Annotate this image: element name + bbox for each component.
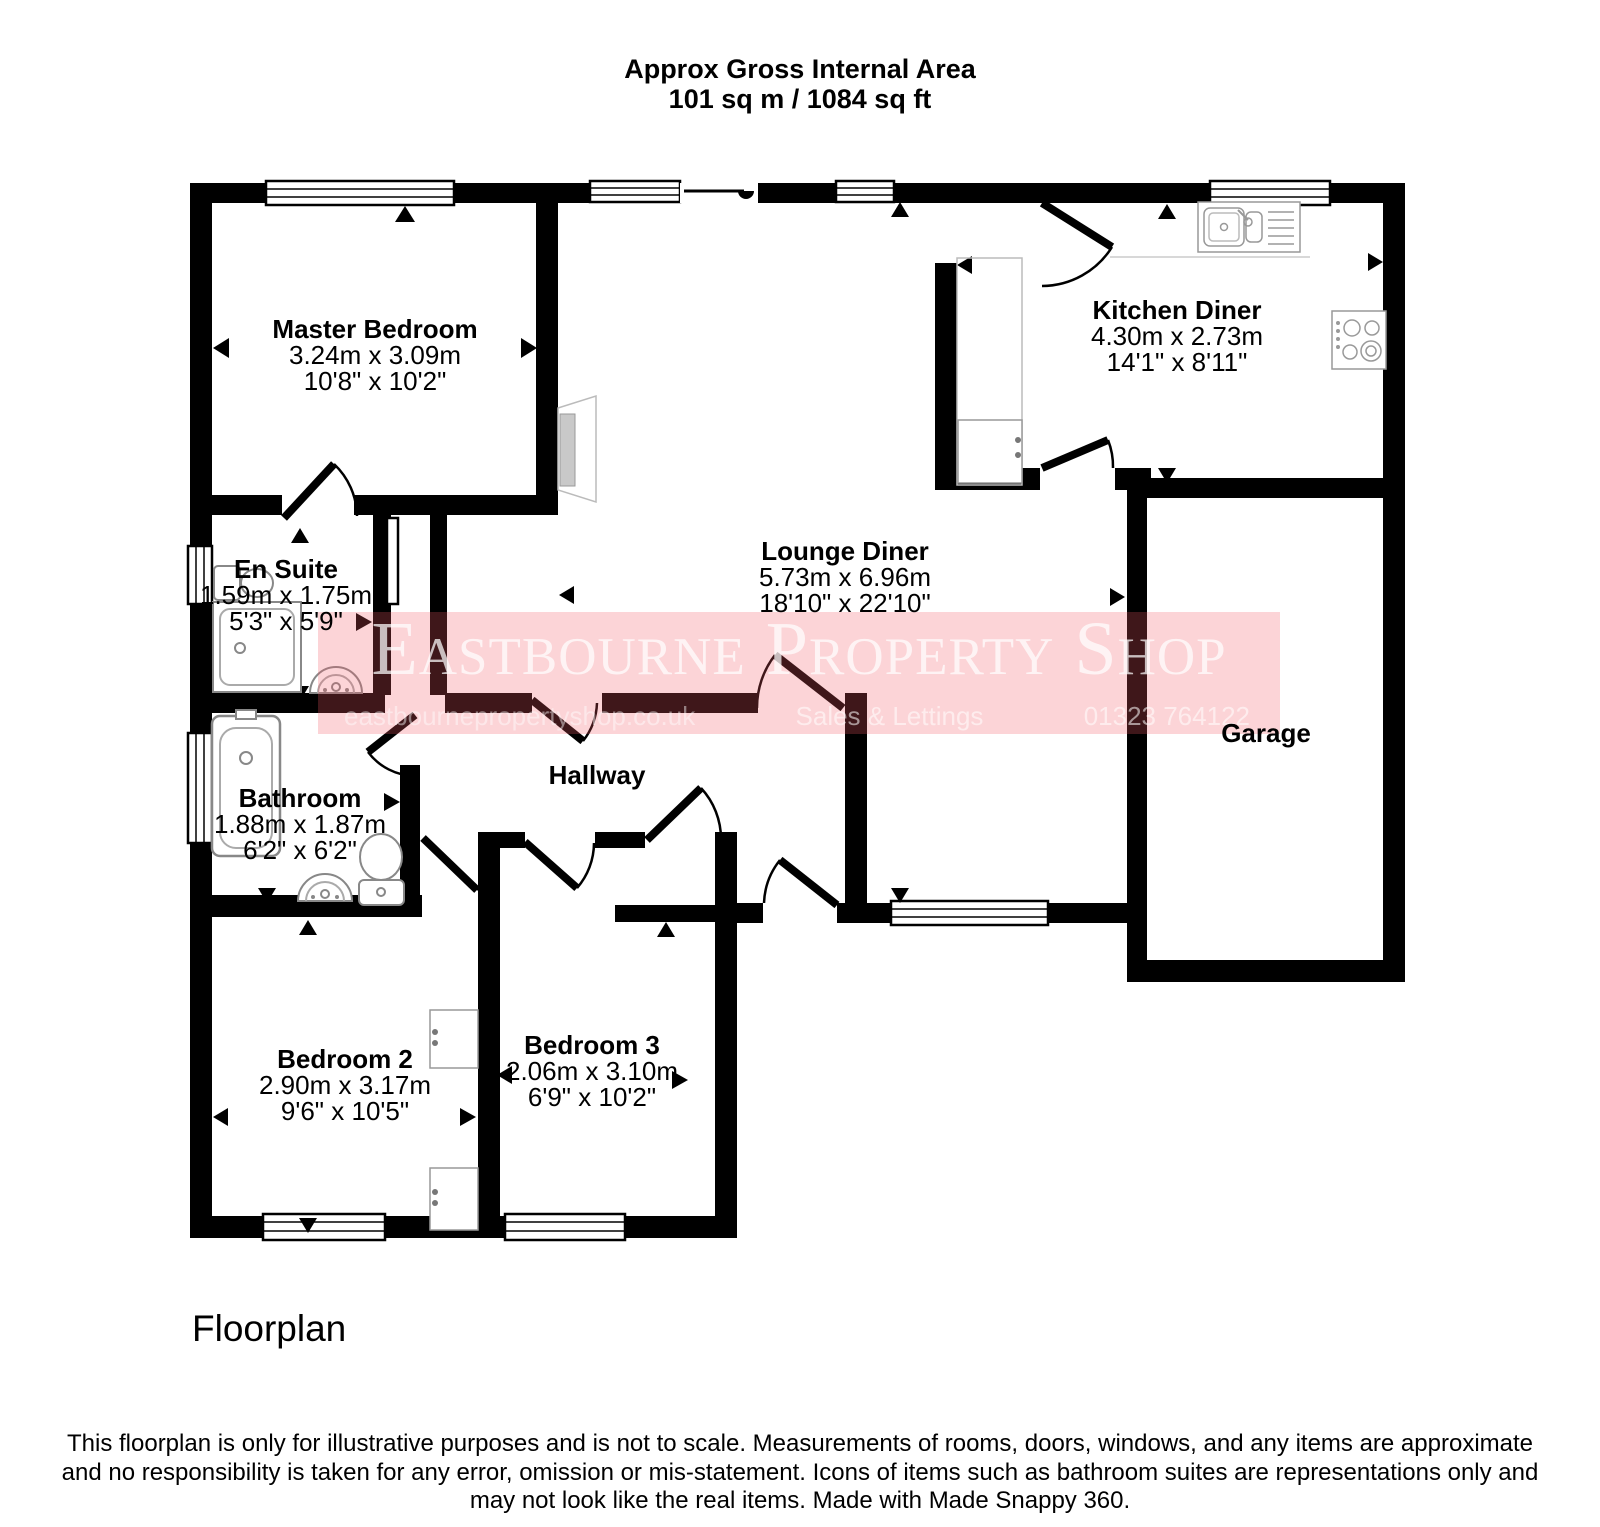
room-label-bedroom-3: Bedroom 32.06m x 3.10m6'9" x 10'2" (432, 1032, 752, 1110)
floorplan-page: Approx Gross Internal Area 101 sq m / 10… (0, 0, 1600, 1527)
room-dim-metric: 2.06m x 3.10m (432, 1058, 752, 1084)
arrow-lounge-right (1110, 588, 1125, 606)
header: Approx Gross Internal Area 101 sq m / 10… (0, 54, 1600, 114)
kitchen-unit-icon (958, 420, 1022, 483)
disclaimer-line3: may not look like the real items. Made w… (0, 1487, 1600, 1516)
room-label-en-suite: En Suite1.59m x 1.75m5'3" x 5'9" (126, 556, 446, 634)
wardrobe-icon-2 (430, 1168, 478, 1230)
room-dim-imperial: 5'3" x 5'9" (126, 608, 446, 634)
front-door-icon (680, 183, 758, 203)
room-dim-metric: 1.88m x 1.87m (140, 811, 460, 837)
door-bedroom3 (647, 788, 721, 840)
window-lounge-right (836, 181, 894, 202)
room-name: Bedroom 3 (432, 1032, 752, 1058)
room-dim-metric: 4.30m x 2.73m (1017, 323, 1337, 349)
room-name: Lounge Diner (685, 538, 1005, 564)
window-rear (891, 901, 1048, 925)
floorplan-drawing (0, 0, 1600, 1527)
room-dim-metric: 3.24m x 3.09m (215, 342, 535, 368)
room-dim-imperial: 18'10" x 22'10" (685, 590, 1005, 616)
room-name: Bathroom (140, 785, 460, 811)
room-dim-imperial: 14'1" x 8'11" (1017, 349, 1337, 375)
door-lounge-rear (757, 655, 843, 708)
arrow-kitchen-up (1158, 204, 1176, 219)
window-lounge-left (590, 181, 680, 202)
header-line2: 101 sq m / 1084 sq ft (0, 84, 1600, 114)
bathroom-sink-icon (298, 874, 352, 901)
door-master-ensuite (284, 464, 357, 518)
ensuite-sink-icon (310, 667, 362, 693)
room-dim-imperial: 10'8" x 10'2" (215, 368, 535, 394)
window-master-top (266, 181, 454, 205)
disclaimer-line1: This floorplan is only for illustrative … (0, 1430, 1600, 1459)
header-line1: Approx Gross Internal Area (0, 54, 1600, 84)
room-label-lounge-diner: Lounge Diner5.73m x 6.96m18'10" x 22'10" (685, 538, 1005, 616)
arrow-lounge-left (559, 586, 574, 604)
room-dim-metric: 1.59m x 1.75m (126, 582, 446, 608)
door-rear-back (764, 860, 837, 905)
room-label-garage: Garage (1106, 720, 1426, 746)
room-name: Garage (1106, 720, 1426, 746)
room-label-kitchen-diner: Kitchen Diner4.30m x 2.73m14'1" x 8'11" (1017, 297, 1337, 375)
room-dim-imperial: 6'2" x 6'2" (140, 837, 460, 863)
arrow-lounge-up (891, 202, 909, 217)
door-hall-inner (525, 842, 594, 888)
floorplan-caption: Floorplan (192, 1308, 346, 1350)
room-dim-imperial: 6'9" x 10'2" (432, 1084, 752, 1110)
room-label-bathroom: Bathroom1.88m x 1.87m6'2" x 6'2" (140, 785, 460, 863)
door-lounge-hallway (532, 700, 597, 741)
door-kitchen-top (1042, 203, 1112, 286)
room-label-master-bedroom: Master Bedroom3.24m x 3.09m10'8" x 10'2" (215, 316, 535, 394)
room-name: Hallway (437, 762, 757, 788)
tv-icon (558, 396, 596, 502)
room-label-hallway: Hallway (437, 762, 757, 788)
disclaimer-line2: and no responsibility is taken for any e… (0, 1459, 1600, 1488)
room-name: Master Bedroom (215, 316, 535, 342)
kitchen-sink-icon (1198, 202, 1300, 252)
arrow-bedroom2-up (299, 920, 317, 935)
hob-icon (1332, 311, 1386, 369)
room-name: En Suite (126, 556, 446, 582)
arrow-ensuite-up (291, 528, 309, 543)
arrow-bedroom3-up (657, 922, 675, 937)
arrow-kitchen-right (1368, 253, 1383, 271)
window-bedroom2-bottom (263, 1214, 385, 1240)
window-bedroom3-bottom (505, 1214, 625, 1240)
room-name: Kitchen Diner (1017, 297, 1337, 323)
disclaimer: This floorplan is only for illustrative … (0, 1430, 1600, 1516)
room-dim-metric: 5.73m x 6.96m (685, 564, 1005, 590)
door-kitchen-bottom (1042, 440, 1113, 468)
arrow-master-up (395, 206, 415, 222)
